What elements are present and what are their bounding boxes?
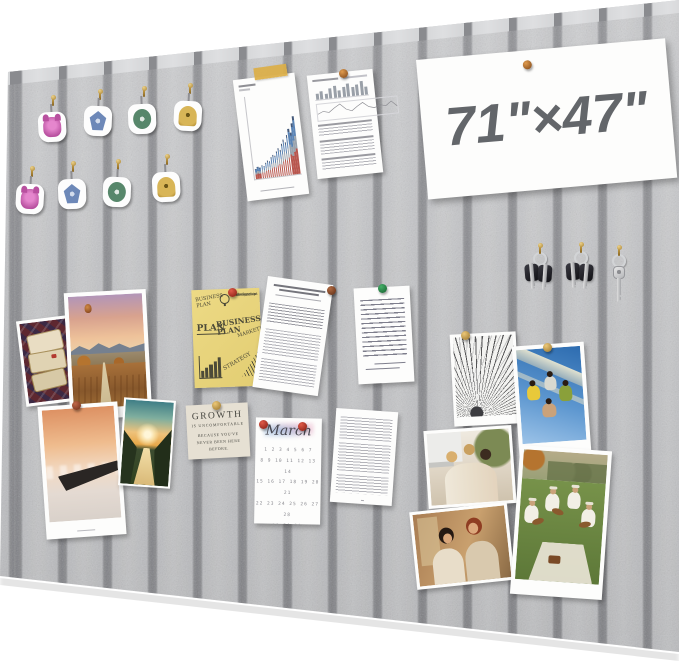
push-pin-brass [543,343,552,352]
growth-quote-card: GROWTH IS UNCOMFORTABLE BECAUSE YOU'VE N… [186,402,251,459]
charm-pink-monster [15,175,45,214]
brass-hook [537,243,543,254]
brass-hook [578,242,584,253]
key-set-black [524,243,556,312]
dimension-label: 71"×47" [443,79,651,158]
palm-leaf [453,334,517,417]
push-pin-brown [327,286,336,295]
charm-green-badge [127,96,156,135]
push-pin-red [298,422,307,431]
charm-blue-crest [83,98,112,137]
mini-bar [315,94,319,100]
mini-bar [342,86,346,97]
charm-gold-crest [151,163,181,202]
hot-air-balloon [85,304,92,313]
page-number-placeholder [361,500,364,501]
mini-bar [328,88,332,98]
article-abstract-placeholder [266,302,325,330]
push-pin-bronze [339,69,348,78]
push-pin-bronze [522,60,532,70]
chart-caption-placeholder [260,186,294,192]
mini-bar [324,93,328,99]
march-calendar: March 1 2 3 4 5 6 7 8 9 10 11 12 13 14 1… [254,417,322,524]
signature-placeholder [366,367,400,370]
article-body-placeholder [262,328,322,362]
photo-caption-placeholder [77,529,95,532]
table-placeholder [321,153,376,171]
handwritten-letter [354,286,415,385]
mini-bar [359,81,364,95]
brass-hook [616,245,622,256]
bar-doodle [199,355,223,379]
mini-bar [355,84,359,96]
key [613,266,625,306]
table-placeholder [318,119,373,137]
business-plan-sticky-note: BUSINESS PLAN Time Relationship Developm… [191,288,262,388]
paragraph-placeholder [337,442,391,474]
push-pin-brass [212,401,221,410]
photo-palm-leaf-bw [450,331,521,426]
mini-bar [351,87,355,96]
charm-gold-crest [173,92,203,131]
dimension-card: 71"×47" [416,38,677,199]
push-pin-green [378,284,387,293]
paragraph-placeholder [339,416,392,442]
mini-bar [333,86,337,98]
mini-bar [364,86,368,95]
typed-document [330,408,398,506]
mini-bar [338,90,342,98]
pinned-analytics-paper [307,69,384,179]
key [535,265,552,310]
sun [135,422,160,447]
table-placeholder [320,135,375,155]
charm-blue-crest [57,171,86,210]
picnic-basket [548,555,561,564]
key-silver [603,245,635,314]
calendar-grid: 1 2 3 4 5 6 7 8 9 10 11 12 13 14 15 16 1… [254,445,321,524]
charm-pink-monster [37,103,67,142]
push-pin-maroon [72,401,81,410]
photo-picnic-guitars [510,445,612,600]
report-header-placeholder [312,77,338,81]
push-pin-brass [461,331,470,340]
photo-three-women-hugging [423,425,516,509]
charm-green-badge [102,169,131,208]
quote-line-3: BECAUSE YOU'VE NEVER BEEN HERE BEFORE. [187,429,250,454]
signature-placeholder [374,362,405,365]
mini-bar-chart [314,79,369,101]
article-body-placeholder [258,358,317,388]
product-photo-felt-pinboard: 71"×47" BUSINESS PLAN Time Relationship [0,0,679,665]
key [576,263,594,308]
push-pin-red [259,420,268,429]
mini-bar [346,83,351,97]
photo-two-women-smiling [409,502,515,590]
key-set-black [565,242,597,311]
stacked-bars [244,91,302,180]
chart-title-placeholder [238,84,255,88]
push-pin-red [228,288,237,297]
chart-subtitle-placeholder [239,88,250,91]
note-heading: BUSINESS PLAN [195,294,217,309]
handwriting-placeholder [360,298,408,358]
photo-airplane-wing-sunset [37,401,126,539]
photo-sunset-river [118,397,176,488]
mini-bar [320,91,324,100]
paragraph-placeholder [335,474,388,496]
